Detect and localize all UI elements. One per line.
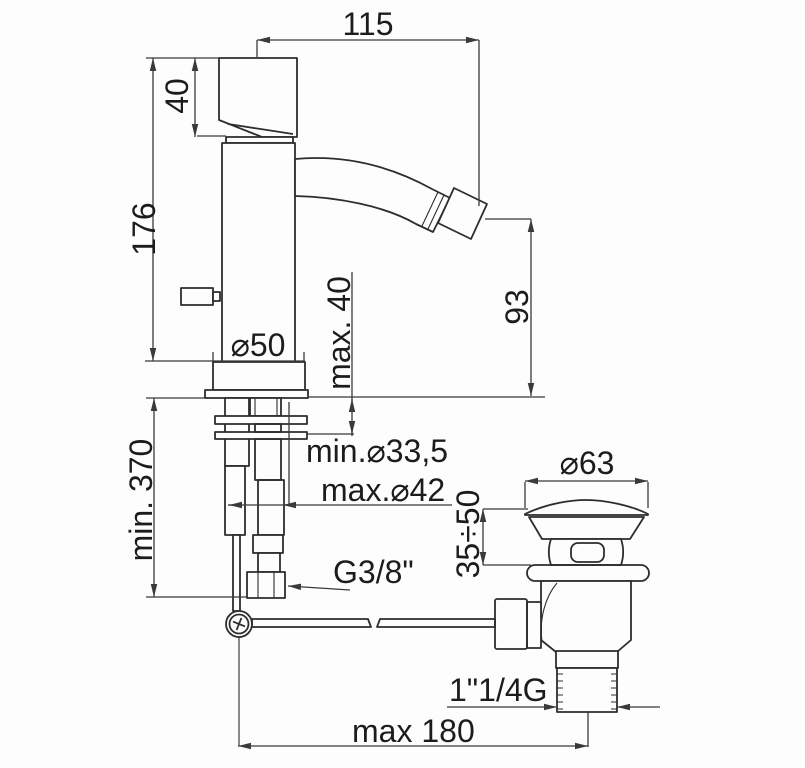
base-flange [205,362,308,398]
knurled-cap [495,599,527,649]
overflow-window [571,543,604,562]
drawing-canvas: 115 40 176 ⌀50 max. 40 93 min. 370 min.⌀… [0,0,805,768]
mixer-handle [219,58,297,143]
dim-body-height: 176 [126,202,162,255]
dim-spout-reach: 115 [342,6,393,42]
spout [295,158,487,239]
waste-tailpiece [557,668,617,712]
technical-drawing-page: 115 40 176 ⌀50 max. 40 93 min. 370 min.⌀… [0,0,805,768]
dim-max-deck-thickness: max. 40 [321,276,357,390]
dim-handle-height: 40 [159,78,195,114]
dim-plug-adjust-range: 35÷50 [450,490,486,579]
dim-max-rod-distance: max 180 [352,713,475,749]
waste-cap [525,500,648,515]
dim-waste-thread: 1"1/4G [449,672,548,708]
clamp-plate-lower [215,432,307,439]
dim-supply-thread: G3/8" [333,554,414,590]
waste-body [541,581,631,652]
dim-base-diameter: ⌀50 [231,327,286,363]
popup-knob [181,288,213,305]
dim-min-hole-diameter: min.⌀33,5 [306,433,448,469]
dim-waste-cap-diameter: ⌀63 [560,445,615,481]
dim-max-hole-diameter: max.⌀42 [321,472,445,508]
braided-hose [255,439,281,480]
popup-rod [233,535,240,611]
dim-spout-height: 93 [499,289,535,325]
supply-nut [247,572,285,598]
dim-min-clearance: min. 370 [123,439,159,562]
clamp-plate-upper [215,416,307,424]
